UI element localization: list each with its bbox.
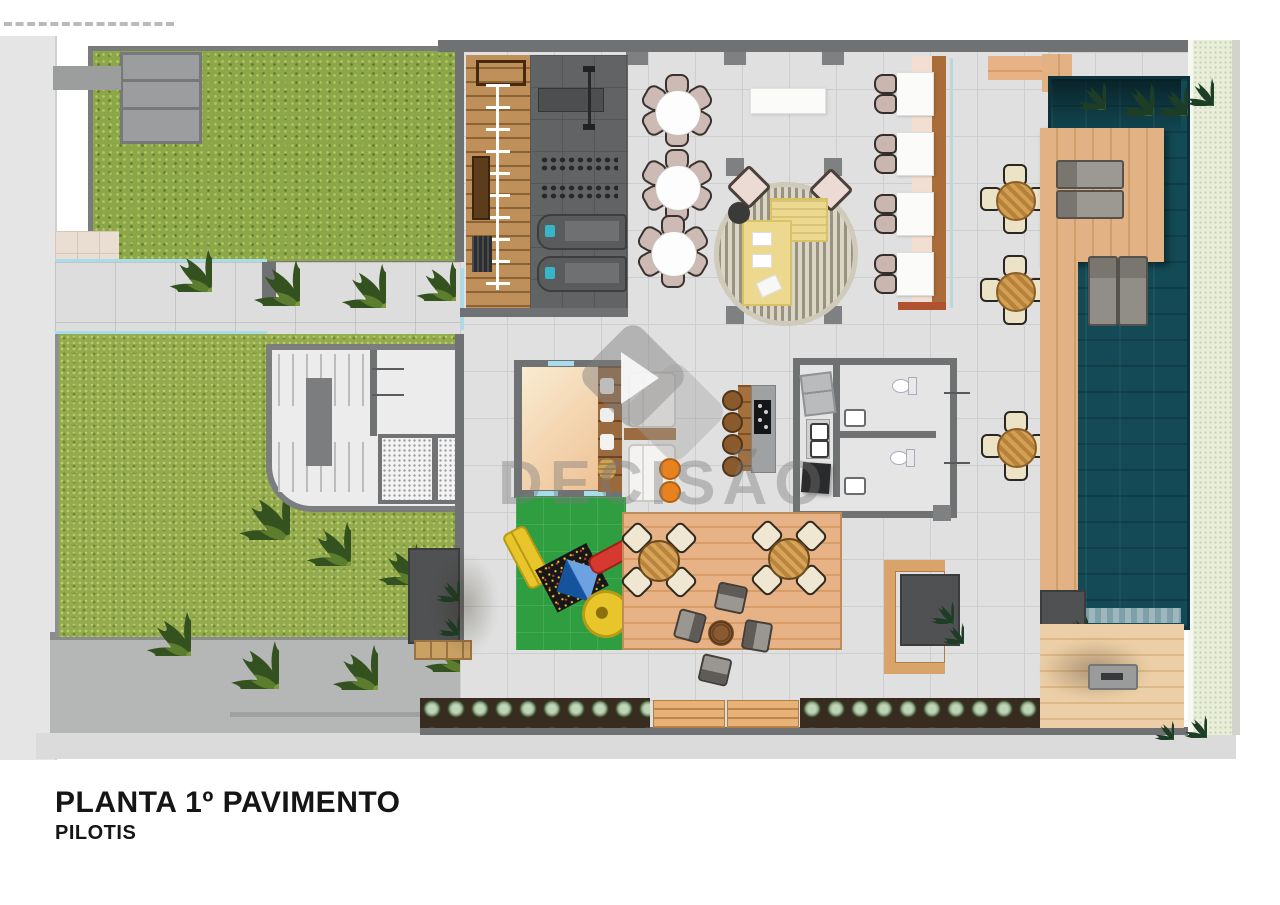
co-working-table bbox=[896, 132, 934, 176]
table-top bbox=[651, 231, 697, 277]
palm-tree-icon bbox=[280, 592, 378, 690]
door-gap bbox=[936, 461, 943, 483]
table-top bbox=[638, 540, 680, 582]
pool-foliage-icon bbox=[1150, 42, 1214, 106]
co-working-table bbox=[896, 72, 934, 116]
dining-table-6 bbox=[638, 218, 708, 288]
sidewalk bbox=[0, 36, 57, 760]
elevator bbox=[378, 434, 436, 504]
terrace-table bbox=[982, 167, 1046, 231]
door-line bbox=[944, 392, 970, 394]
treadmill-icon bbox=[537, 256, 627, 292]
planter-strip bbox=[800, 698, 1045, 728]
table-top bbox=[655, 165, 701, 211]
treadmill-screen bbox=[545, 225, 555, 237]
chair bbox=[874, 274, 897, 294]
pool-deck-strip bbox=[1040, 262, 1078, 624]
banquette-base bbox=[898, 302, 946, 310]
gym-bottom-wall bbox=[460, 308, 628, 317]
garden-bench bbox=[727, 700, 799, 728]
burner bbox=[764, 410, 768, 414]
chair bbox=[874, 134, 897, 154]
door-line bbox=[372, 394, 404, 396]
battle-station-icon bbox=[472, 236, 492, 272]
deck-piece bbox=[988, 56, 1044, 80]
table-top bbox=[997, 428, 1037, 468]
cushion bbox=[752, 232, 772, 246]
restroom-divider-wall bbox=[833, 431, 936, 438]
tropical-plant-icon bbox=[916, 596, 964, 644]
plan-subtitle: PILOTIS bbox=[55, 822, 136, 845]
column-stub bbox=[822, 52, 844, 65]
gym-bench-icon bbox=[472, 156, 490, 220]
toilet bbox=[890, 449, 916, 465]
entry-path bbox=[53, 66, 121, 90]
tree-shadow bbox=[430, 550, 500, 660]
treadmill-icon bbox=[537, 214, 627, 250]
deck-dining-table bbox=[622, 524, 692, 594]
door-line bbox=[372, 368, 404, 370]
in-pool-lounger bbox=[1088, 256, 1118, 326]
burner bbox=[764, 425, 768, 429]
sun-lounger bbox=[1056, 160, 1124, 189]
floor-plan-canvas: DECISÃO PLANTA 1º PAVIMENTO PILOTIS bbox=[0, 0, 1280, 905]
treadmill-belt bbox=[565, 221, 619, 241]
burner bbox=[758, 418, 762, 422]
spiral-center bbox=[594, 605, 610, 621]
table-top bbox=[768, 538, 810, 580]
column-stub bbox=[724, 52, 746, 65]
palm-tree-icon bbox=[120, 200, 212, 292]
property-dashed-line bbox=[4, 22, 174, 26]
barbell-plate bbox=[583, 66, 595, 72]
dining-table-6 bbox=[642, 77, 712, 147]
bench-press-icon bbox=[538, 88, 604, 112]
fridge bbox=[800, 371, 837, 417]
glass-accent bbox=[461, 268, 464, 330]
coffee-table bbox=[708, 620, 734, 646]
glass-accent bbox=[548, 361, 574, 366]
deck-dining-table bbox=[752, 522, 822, 592]
toilet bbox=[892, 377, 918, 393]
door-gap bbox=[936, 391, 943, 413]
garden-bench bbox=[653, 700, 725, 728]
burner bbox=[758, 404, 762, 408]
palm-tree-icon bbox=[175, 585, 279, 689]
cushion bbox=[752, 254, 772, 268]
chair bbox=[874, 214, 897, 234]
chair bbox=[874, 154, 897, 174]
glass-accent bbox=[55, 331, 267, 334]
bottom-sidewalk-strip bbox=[36, 733, 1236, 759]
table-top bbox=[996, 181, 1036, 221]
chair bbox=[874, 74, 897, 94]
dumbbell-rack-icon bbox=[540, 184, 618, 200]
terrace-table bbox=[982, 258, 1046, 322]
banquette-wood-back bbox=[932, 56, 946, 306]
cooktop bbox=[754, 400, 771, 434]
bar-stool bbox=[722, 390, 743, 411]
table-top bbox=[655, 90, 701, 136]
plan-title: PLANTA 1º PAVIMENTO bbox=[55, 786, 400, 820]
washbasin bbox=[844, 477, 866, 495]
stair-landing-wall bbox=[306, 378, 332, 466]
dining-table-6 bbox=[642, 152, 712, 222]
left-wall-upper bbox=[455, 48, 464, 262]
planter-strip bbox=[420, 698, 650, 728]
in-pool-lounger bbox=[1118, 256, 1148, 326]
fire-table bbox=[1088, 664, 1138, 690]
perimeter-edge bbox=[1232, 40, 1240, 735]
fire-slot bbox=[1101, 673, 1123, 680]
dumbbell-rack-icon bbox=[540, 156, 618, 172]
palm-tree-icon bbox=[370, 215, 456, 301]
buffet-table bbox=[750, 88, 826, 114]
door-line bbox=[944, 462, 970, 464]
entry-ramp bbox=[120, 52, 202, 144]
column-stub bbox=[626, 52, 648, 65]
watermark-play-triangle bbox=[621, 352, 659, 404]
sun-lounger bbox=[1056, 190, 1124, 219]
side-table bbox=[728, 202, 750, 224]
watermark-logo bbox=[585, 332, 725, 460]
co-working-table bbox=[896, 252, 934, 296]
chair bbox=[874, 194, 897, 214]
sink-bowl bbox=[810, 423, 829, 441]
chair bbox=[874, 94, 897, 114]
palm-tree-icon bbox=[200, 206, 300, 306]
glass-railing bbox=[950, 58, 953, 308]
treadmill-belt bbox=[565, 263, 619, 283]
toilet-tank bbox=[908, 377, 917, 395]
lounge-chair bbox=[741, 619, 774, 653]
barbell-plate bbox=[583, 124, 595, 130]
bar-stool bbox=[722, 412, 743, 433]
pull-up-bar-icon bbox=[476, 60, 526, 86]
toilet-tank bbox=[906, 449, 915, 467]
chair bbox=[874, 254, 897, 274]
bottom-wall bbox=[420, 727, 1188, 735]
lounge-chair bbox=[713, 581, 748, 615]
table-top bbox=[996, 272, 1036, 312]
column-stub bbox=[933, 505, 951, 521]
core-wall bbox=[370, 350, 377, 436]
pool-wet-edge bbox=[1077, 608, 1181, 623]
treadmill-screen bbox=[545, 267, 555, 279]
co-working-table bbox=[896, 192, 934, 236]
l-sofa bbox=[742, 198, 826, 304]
terrace-table bbox=[983, 414, 1047, 478]
pool-foliage-icon bbox=[1130, 696, 1174, 740]
watermark-text: DECISÃO bbox=[498, 448, 829, 519]
barbell-icon bbox=[588, 70, 591, 128]
washbasin bbox=[844, 409, 866, 427]
